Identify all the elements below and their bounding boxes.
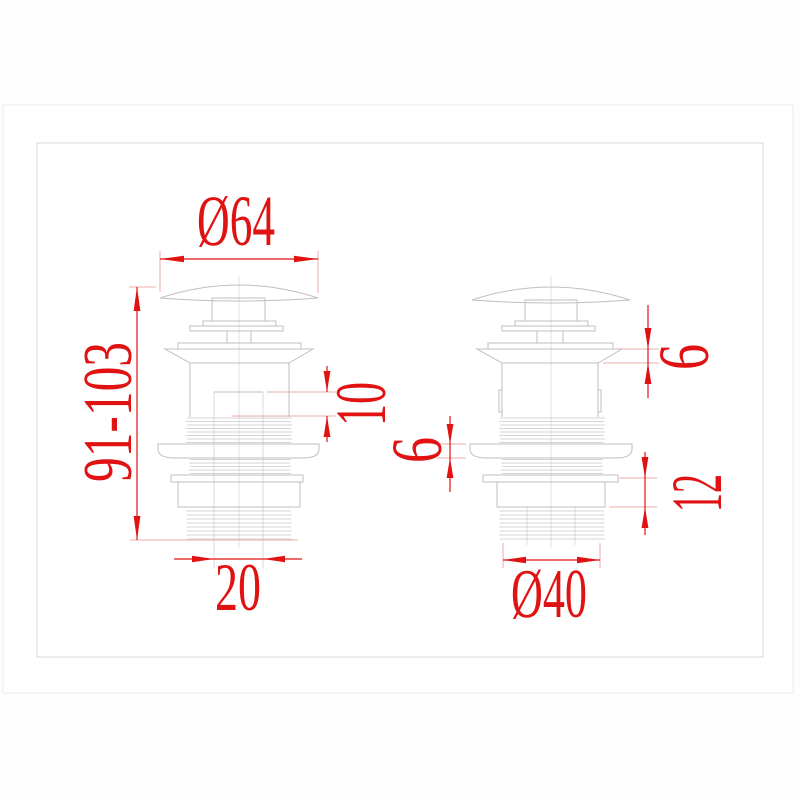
drawing-canvas: Ø64 91-103 10 20 6 6 12	[0, 0, 800, 800]
dim-label-gasket-thickness: 6	[377, 437, 457, 463]
dim-label-overall-height: 91-103	[70, 342, 147, 482]
dim-label-upper-body-height: 10	[321, 382, 401, 426]
dim-label-tail-thread-diameter: Ø40	[511, 556, 587, 633]
dim-label-cap-diameter: Ø64	[197, 181, 275, 261]
dim-label-flange-height: 6	[644, 344, 724, 370]
dim-label-outlet-bore: 20	[215, 549, 261, 625]
technical-drawing: Ø64 91-103 10 20 6 6 12	[0, 0, 800, 800]
dim-tail-thread-diameter: Ø40	[503, 543, 600, 633]
dim-label-locknut-height: 12	[657, 474, 737, 512]
